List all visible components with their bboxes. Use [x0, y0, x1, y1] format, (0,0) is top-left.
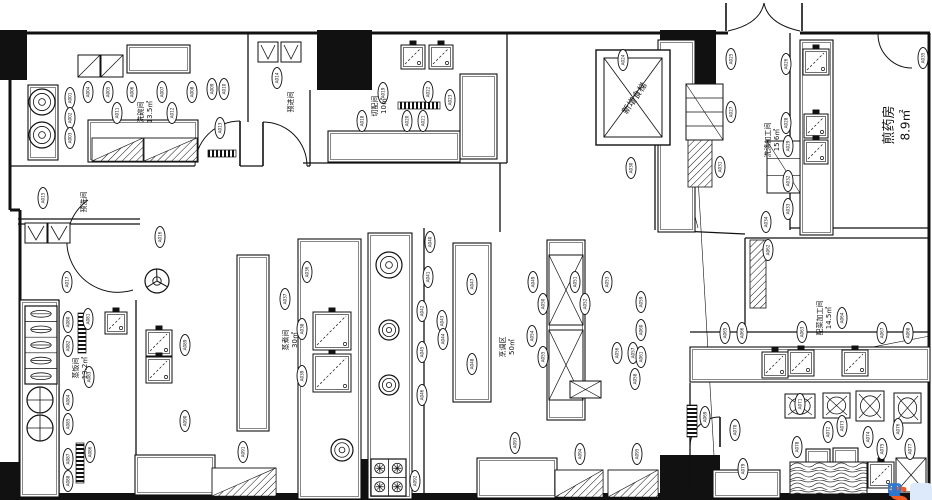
room-label: 预洗间 [79, 192, 88, 213]
svg-text:A032: A032 [786, 175, 791, 186]
steamer-stack [25, 306, 57, 384]
tag-pill: A017 [62, 272, 72, 293]
tag-pill: A080 [63, 312, 73, 333]
tag-pill: A048 [467, 354, 477, 375]
tag-pill: A056 [612, 343, 622, 364]
svg-text:A019: A019 [381, 87, 386, 98]
tag-pill: A063 [797, 322, 807, 343]
svg-text:A038: A038 [300, 323, 305, 334]
svg-text:切配间: 切配间 [371, 96, 379, 117]
tag-pill: A093 [510, 433, 520, 454]
svg-text:14.5㎡: 14.5㎡ [825, 307, 833, 330]
tag-pill: A075 [877, 439, 887, 460]
tag-pill: A030 [626, 158, 636, 179]
tag-pill: A094 [575, 444, 585, 465]
tag-pill: A074 [863, 427, 873, 448]
sink [146, 353, 172, 383]
tag-pill: A035 [918, 48, 928, 69]
svg-text:A012: A012 [170, 107, 175, 118]
hatched-counter [212, 468, 276, 496]
waste-bin [823, 393, 850, 418]
hood-box [258, 42, 278, 62]
svg-text:A065: A065 [723, 327, 728, 338]
svg-text:A052: A052 [583, 298, 588, 309]
tag-pill: A086 [85, 442, 95, 463]
sink [146, 326, 172, 356]
sink [788, 346, 814, 376]
svg-text:A067: A067 [880, 327, 885, 338]
svg-text:A003: A003 [68, 132, 73, 143]
svg-text:13.2㎡: 13.2㎡ [81, 357, 89, 380]
tag-pill: A015 [38, 188, 48, 209]
floor-grate [208, 150, 236, 157]
tag-pill: A077 [905, 439, 915, 460]
hatched-counter [144, 138, 197, 161]
worktable [237, 255, 269, 431]
svg-text:A072: A072 [826, 426, 831, 437]
tag-pill: A031 [715, 157, 725, 178]
tag-pill: A072 [823, 422, 833, 443]
tag-pill: A029 [783, 136, 793, 157]
worktable [460, 74, 497, 159]
svg-text:A062: A062 [766, 244, 771, 255]
room-label: 切配间10㎡ [371, 96, 388, 117]
tag-pill: A042 [417, 301, 427, 322]
kitchen-equipment [20, 40, 930, 499]
tag-pill: A023 [445, 90, 455, 111]
room-label: 烹调区50㎡ [498, 337, 516, 358]
corner-cabinet [101, 55, 123, 77]
svg-text:A087: A087 [66, 453, 71, 464]
svg-text:A016: A016 [158, 231, 163, 242]
svg-text:A002: A002 [68, 112, 73, 123]
svg-text:A064: A064 [840, 312, 845, 323]
svg-text:A089: A089 [183, 339, 188, 350]
svg-text:A021: A021 [421, 115, 426, 126]
sink [313, 350, 351, 392]
svg-text:A043: A043 [440, 315, 445, 326]
sink [762, 348, 788, 378]
svg-text:A023: A023 [448, 94, 453, 105]
hood-box [48, 223, 70, 243]
waste-bin [856, 391, 884, 421]
svg-text:A068: A068 [906, 327, 911, 338]
svg-text:预进间: 预进间 [286, 92, 295, 113]
svg-text:30㎡: 30㎡ [291, 332, 299, 348]
svg-text:A066: A066 [740, 327, 745, 338]
svg-text:A095: A095 [635, 448, 640, 459]
tag-pill: A055 [538, 347, 548, 368]
sink [401, 41, 425, 69]
svg-text:配菜加工间: 配菜加工间 [815, 301, 824, 336]
sink [804, 110, 828, 138]
hatched-counter [555, 470, 603, 497]
worktable [453, 243, 491, 402]
tag-pill: A014 [272, 68, 282, 89]
svg-text:13.5㎡: 13.5㎡ [146, 101, 154, 124]
sink [429, 41, 453, 69]
worktable [135, 455, 215, 495]
svg-text:A061: A061 [639, 351, 644, 362]
svg-text:A025: A025 [729, 53, 734, 64]
svg-text:A049: A049 [531, 276, 536, 287]
crossed-cabinet [570, 381, 601, 398]
corner-cabinet [78, 55, 100, 77]
tag-pill: A071 [795, 394, 805, 415]
svg-text:A009: A009 [210, 83, 215, 94]
svg-text:A051: A051 [573, 276, 578, 287]
wood-table [790, 462, 867, 494]
svg-text:A076: A076 [896, 423, 901, 434]
worktable [477, 458, 557, 498]
svg-text:A059: A059 [639, 296, 644, 307]
tag-pill: A013 [215, 118, 225, 139]
svg-text:A008: A008 [190, 86, 195, 97]
svg-text:A082: A082 [66, 340, 71, 351]
svg-text:A045: A045 [420, 346, 425, 357]
room-label: 洗涤加工间15.6㎡ [763, 123, 781, 158]
tag-pill: A073 [837, 416, 847, 437]
tag-pill: A034 [761, 212, 771, 233]
svg-text:A081: A081 [86, 313, 91, 324]
svg-text:A024: A024 [621, 54, 626, 65]
tag-pill: A091 [238, 442, 248, 463]
svg-text:蒸煮间: 蒸煮间 [281, 330, 290, 351]
tag-pill: A079 [738, 459, 748, 480]
svg-text:A033: A033 [786, 203, 791, 214]
svg-text:A084: A084 [66, 394, 71, 405]
tag-pill: A020 [402, 111, 412, 132]
tag-pill: A092 [410, 471, 420, 492]
hatched-counter [608, 470, 658, 497]
sink [803, 45, 829, 75]
floor-plan-page: A001A002A003A004A005A006A007A008A009A010… [0, 0, 932, 500]
tag-pill: A060 [636, 320, 646, 341]
svg-text:A011: A011 [115, 107, 120, 118]
svg-text:A093: A093 [513, 437, 518, 448]
svg-text:A030: A030 [629, 162, 634, 173]
svg-text:A092: A092 [413, 475, 418, 486]
svg-text:A026: A026 [784, 58, 789, 69]
floor-grate [398, 102, 440, 109]
svg-text:A054: A054 [530, 330, 535, 341]
svg-text:煎药房: 煎药房 [881, 105, 897, 144]
svg-text:A020: A020 [405, 115, 410, 126]
room-label: 预进间 [286, 92, 295, 113]
tag-pill: A067 [877, 323, 887, 344]
tag-pill: A026 [781, 54, 791, 75]
tag-pill: A025 [726, 49, 736, 70]
svg-text:A058: A058 [633, 373, 638, 384]
svg-text:A070: A070 [733, 424, 738, 435]
hood-box [25, 223, 47, 243]
tag-pill: A078 [792, 437, 802, 458]
tag-pill: A036 [302, 262, 312, 283]
svg-text:A077: A077 [908, 443, 913, 454]
four-burner-stove [371, 459, 406, 496]
svg-text:A050: A050 [541, 298, 546, 309]
watermark: S [888, 483, 932, 500]
tag-pill: A028 [781, 113, 791, 134]
soup-pot [27, 387, 53, 413]
svg-text:A071: A071 [798, 398, 803, 409]
worktable [127, 45, 190, 73]
svg-text:A007: A007 [160, 86, 165, 97]
tag-pill: A040 [425, 232, 435, 253]
tag-pill: A016 [155, 227, 165, 248]
svg-text:A036: A036 [305, 266, 310, 277]
tag-pill: A024 [618, 50, 628, 71]
tag-pill: A076 [893, 419, 903, 440]
tag-pill: A045 [417, 342, 427, 363]
svg-text:A047: A047 [470, 278, 475, 289]
tag-pill: A005 [103, 82, 113, 103]
svg-text:A015: A015 [41, 192, 46, 203]
tag-pill: A058 [630, 369, 640, 390]
tag-pill: A001 [65, 88, 75, 109]
tag-pill: A053 [602, 272, 612, 293]
svg-text:A063: A063 [800, 326, 805, 337]
svg-text:蒸饭间: 蒸饭间 [71, 358, 80, 379]
svg-text:A055: A055 [541, 351, 546, 362]
svg-text:A041: A041 [426, 271, 431, 282]
svg-text:烹调区: 烹调区 [498, 337, 507, 358]
room-label: 煎药房8.9㎡ [881, 105, 912, 145]
tag-pill: A027 [726, 102, 736, 123]
svg-text:A048: A048 [470, 358, 475, 369]
tag-pill: A050 [538, 294, 548, 315]
tag-pill: A052 [580, 294, 590, 315]
room-label: 洗碗间13.5㎡ [136, 97, 154, 126]
room-label: 蒸饭间13.2㎡ [71, 353, 89, 382]
mixer-wheel [145, 269, 169, 293]
svg-text:A013: A013 [218, 122, 223, 133]
svg-text:A028: A028 [784, 117, 789, 128]
tag-pill: A095 [632, 444, 642, 465]
mic-icon[interactable] [888, 483, 901, 496]
sink [105, 308, 127, 334]
svg-text:A005: A005 [106, 86, 111, 97]
svg-text:10㎡: 10㎡ [380, 98, 388, 114]
tag-pill: A008 [187, 82, 197, 103]
floor-plan-canvas: A001A002A003A004A005A006A007A008A009A010… [0, 0, 932, 500]
svg-text:A094: A094 [578, 448, 583, 459]
tag-pill: A012 [167, 103, 177, 124]
tag-pill: A049 [528, 272, 538, 293]
tag-pill: A070 [730, 420, 740, 441]
tag-pill: A084 [63, 390, 73, 411]
tag-pill: A041 [423, 267, 433, 288]
hood-box [281, 42, 301, 62]
tag-pill: A089 [180, 335, 190, 356]
svg-text:A042: A042 [420, 305, 425, 316]
svg-text:A074: A074 [866, 431, 871, 442]
svg-text:A010: A010 [222, 83, 227, 94]
floor-grate [687, 405, 697, 437]
sink [313, 308, 351, 350]
svg-text:A029: A029 [786, 140, 791, 151]
watermark-toolbar [910, 483, 932, 500]
tag-pill: A068 [903, 323, 913, 344]
svg-text:A090: A090 [183, 415, 188, 426]
tag-pill: A033 [783, 199, 793, 220]
sink [804, 136, 828, 164]
room-label: 蒸煮间30㎡ [281, 330, 299, 351]
tag-pill: A010 [219, 79, 229, 100]
svg-text:A088: A088 [66, 475, 71, 486]
svg-text:15.6㎡: 15.6㎡ [773, 129, 781, 152]
svg-text:A004: A004 [86, 86, 91, 97]
tag-pill: A051 [570, 272, 580, 293]
tag-pill: A059 [636, 292, 646, 313]
svg-text:A091: A091 [241, 446, 246, 457]
tag-pill: A018 [357, 111, 367, 132]
tag-pill: A082 [63, 336, 73, 357]
svg-text:A022: A022 [426, 86, 431, 97]
tag-pill: A062 [763, 240, 773, 261]
svg-text:A039: A039 [300, 370, 305, 381]
tag-pill: A039 [297, 366, 307, 387]
hatched-counter [92, 138, 143, 161]
svg-text:A018: A018 [360, 115, 365, 126]
svg-text:洗碗间: 洗碗间 [136, 102, 145, 123]
sink [842, 346, 868, 376]
tag-pill: A046 [417, 385, 427, 406]
soup-pot [27, 415, 53, 441]
tag-pill: A090 [180, 411, 190, 432]
tag-pill: A085 [63, 414, 73, 435]
svg-text:A006: A006 [130, 86, 135, 97]
svg-text:A027: A027 [729, 106, 734, 117]
svg-text:A040: A040 [428, 236, 433, 247]
tag-pill: A021 [418, 111, 428, 132]
tag-pill: A003 [65, 128, 75, 149]
tag-pill: A047 [467, 274, 477, 295]
tag-pill: A087 [63, 449, 73, 470]
tag-pill: A081 [83, 309, 93, 330]
tag-pill: A011 [112, 103, 122, 124]
svg-text:A069: A069 [703, 411, 708, 422]
tag-pill: A009 [207, 79, 217, 100]
svg-text:洗涤加工间: 洗涤加工间 [763, 123, 772, 158]
hatched-wall [688, 140, 712, 187]
svg-text:A080: A080 [66, 316, 71, 327]
svg-text:A085: A085 [66, 418, 71, 429]
tag-pill: A044 [438, 329, 448, 350]
tag-pill: A054 [527, 326, 537, 347]
svg-text:A079: A079 [741, 463, 746, 474]
svg-text:A037: A037 [283, 293, 288, 304]
tag-pill: A006 [127, 82, 137, 103]
tag-pill: A065 [720, 323, 730, 344]
tag-pill: A088 [63, 471, 73, 492]
tag-pill: A064 [837, 308, 847, 329]
tag-pill: A022 [423, 82, 433, 103]
svg-text:A073: A073 [840, 420, 845, 431]
worktable [328, 131, 460, 162]
svg-text:A057: A057 [631, 347, 636, 358]
tag-pill: A037 [280, 289, 290, 310]
svg-text:A017: A017 [65, 276, 70, 287]
svg-text:A044: A044 [441, 333, 446, 344]
svg-text:A056: A056 [615, 347, 620, 358]
svg-text:A053: A053 [605, 276, 610, 287]
tag-pill: A032 [783, 171, 793, 192]
svg-text:预洗间: 预洗间 [79, 192, 88, 213]
tag-pill: A061 [636, 347, 646, 368]
svg-text:A031: A031 [718, 161, 723, 172]
svg-text:A075: A075 [880, 443, 885, 454]
svg-text:A086: A086 [88, 446, 93, 457]
tag-pill: A066 [737, 323, 747, 344]
svg-text:A014: A014 [275, 72, 280, 83]
svg-text:50㎡: 50㎡ [508, 339, 516, 355]
svg-text:A046: A046 [420, 389, 425, 400]
svg-text:A060: A060 [639, 324, 644, 335]
room-label: 配菜加工间14.5㎡ [815, 301, 833, 336]
floor-grate [76, 443, 84, 483]
svg-text:A001: A001 [68, 92, 73, 103]
svg-text:A035: A035 [921, 52, 926, 63]
tag-pill: A002 [65, 108, 75, 129]
tag-pill: A069 [700, 407, 710, 428]
svg-text:A078: A078 [795, 441, 800, 452]
svg-text:8.9㎡: 8.9㎡ [898, 109, 912, 140]
svg-text:A034: A034 [764, 216, 769, 227]
tag-pill: A007 [157, 82, 167, 103]
shelf-unit [686, 84, 723, 140]
tag-pill: A004 [83, 82, 93, 103]
